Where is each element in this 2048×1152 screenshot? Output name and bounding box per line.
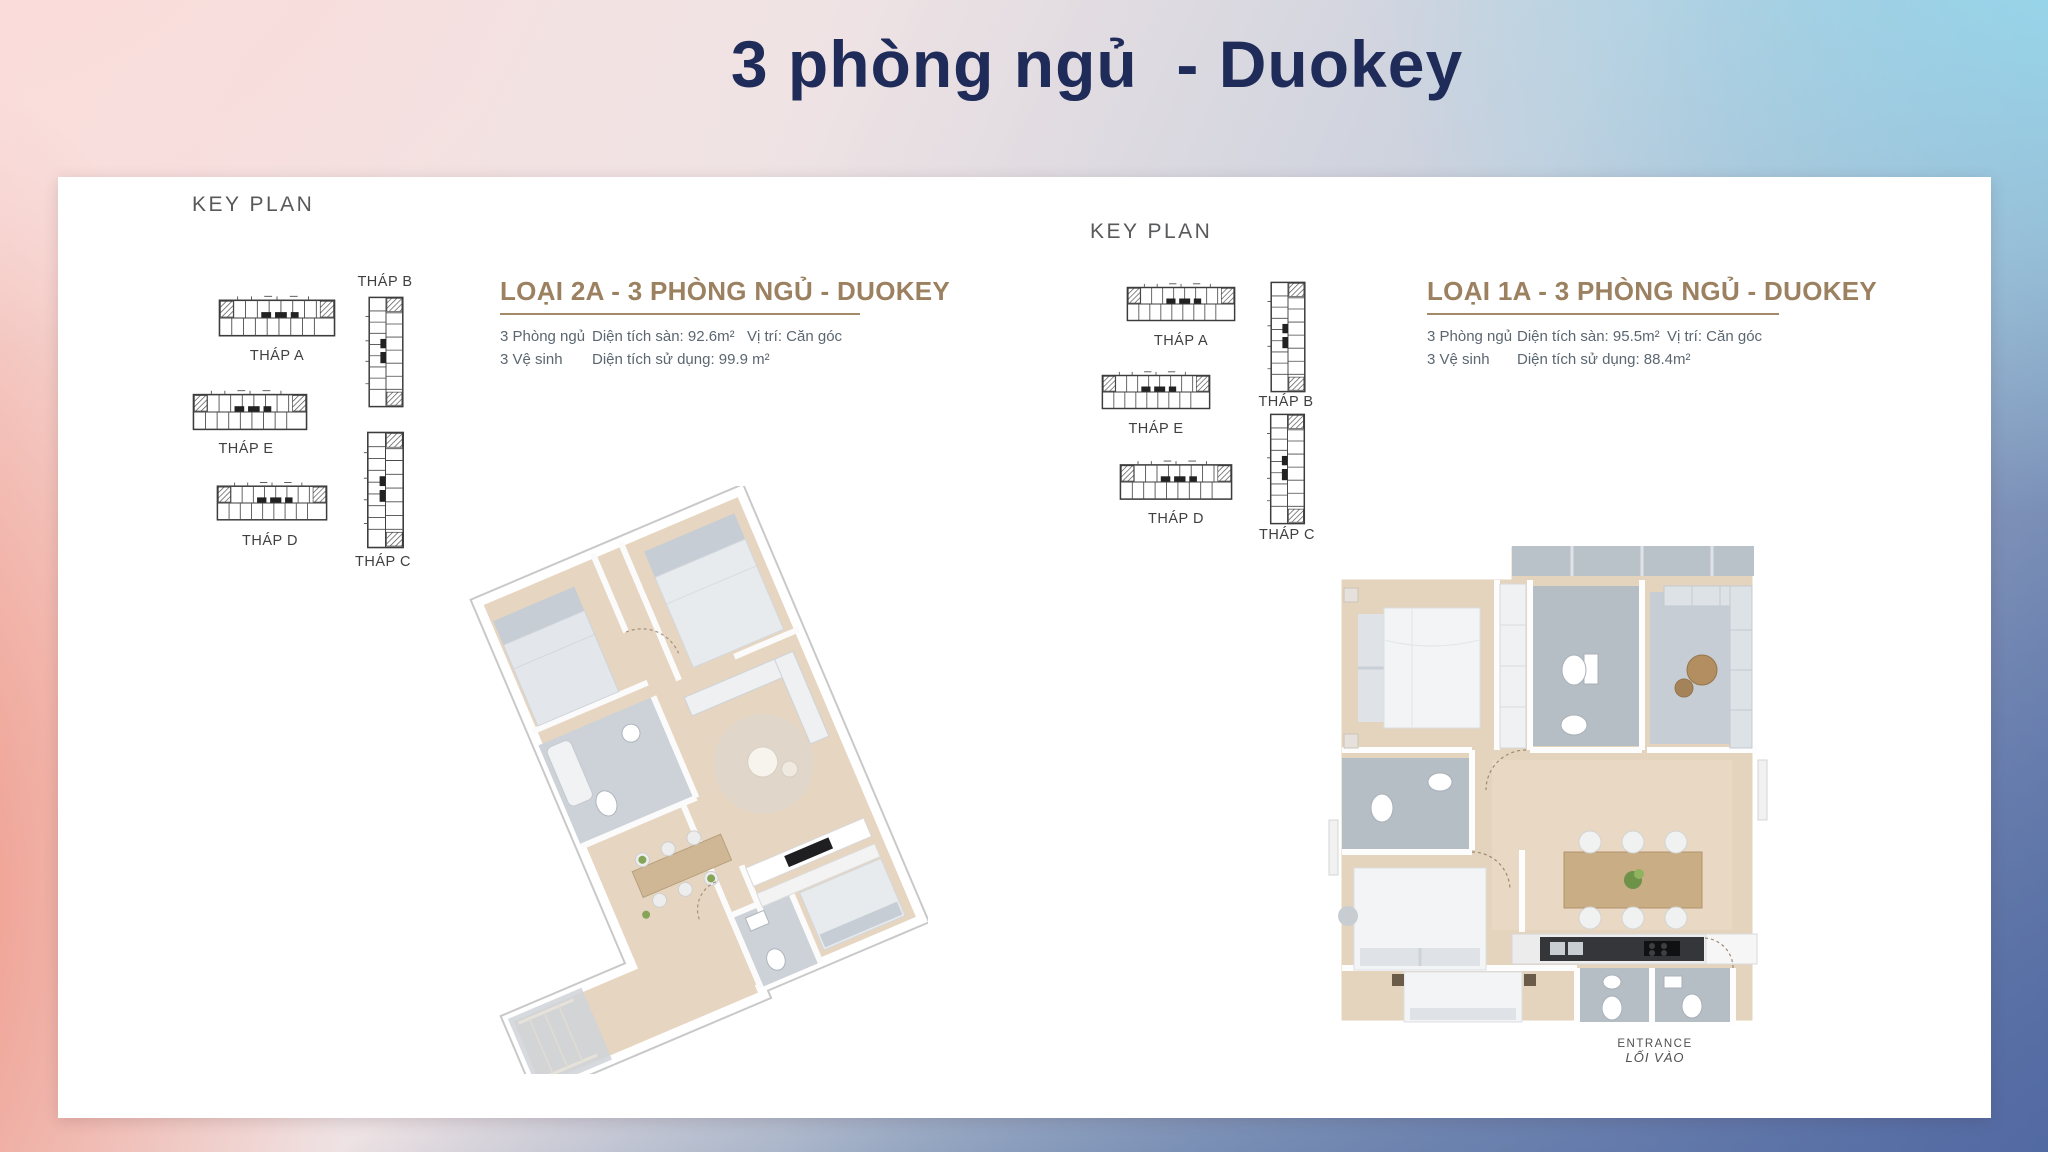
floor-plan-top-right: [1312, 520, 1784, 1048]
spec-usable-area: Diện tích sử dụng: 99.9 m²: [592, 351, 770, 368]
spec-floor-area: Diện tích sàn: 95.5m²: [1517, 328, 1660, 345]
entrance-label-en: ENTRANCE: [1585, 1038, 1725, 1050]
slide-background: 3 phòng ngủ - Duokey KEY PLAN THÁP A THÁ…: [0, 0, 2048, 1152]
entrance-label: ENTRANCE LỐI VÀO: [1585, 1038, 1725, 1065]
tower-label-b-right: THÁP B: [1246, 394, 1326, 410]
spec-usable-area: Diện tích sử dụng: 88.4m²: [1517, 351, 1690, 368]
unit-heading-right: LOẠI 1A - 3 PHÒNG NGỦ - DUOKEY: [1427, 276, 1877, 307]
tower-plan-e-right: [1101, 368, 1211, 416]
tower-label-e-left: THÁP E: [206, 441, 286, 457]
tower-plan-c-left: [357, 431, 414, 549]
key-plan-label-right: KEY PLAN: [1090, 220, 1212, 244]
unit-specs-right: 3 Phòng ngủ 3 Vệ sinh Diện tích sàn: 95.…: [1427, 328, 1987, 378]
floor-plan-3d-left: [408, 486, 928, 1074]
tower-plan-b-left: [358, 296, 414, 408]
tower-plan-b-right: [1262, 281, 1314, 393]
tower-plan-a-left: [218, 290, 336, 346]
tower-plan-d-left: [216, 476, 328, 530]
tower-plan-d-right: [1119, 456, 1233, 508]
tower-plan-a-right: [1126, 278, 1236, 330]
tower-label-d-left: THÁP D: [230, 533, 310, 549]
key-plan-label-left: KEY PLAN: [192, 193, 314, 217]
spec-bedrooms: 3 Phòng ngủ: [1427, 328, 1512, 345]
unit-specs-left: 3 Phòng ngủ 3 Vệ sinh Diện tích sàn: 92.…: [500, 328, 1060, 378]
spec-bedrooms: 3 Phòng ngủ: [500, 328, 585, 345]
tower-label-a-right: THÁP A: [1141, 333, 1221, 349]
heading-underline-left: [500, 313, 860, 315]
spec-bathrooms: 3 Vệ sinh: [500, 351, 563, 368]
tower-label-d-right: THÁP D: [1136, 511, 1216, 527]
tower-label-e-right: THÁP E: [1116, 421, 1196, 437]
spec-floor-area: Diện tích sàn: 92.6m²: [592, 328, 735, 345]
spec-bathrooms: 3 Vệ sinh: [1427, 351, 1490, 368]
page-title: 3 phòng ngủ - Duokey: [0, 26, 2048, 102]
spec-position: Vị trí: Căn góc: [1667, 328, 1762, 345]
entrance-label-vi: LỐI VÀO: [1585, 1050, 1725, 1065]
tower-plan-e-left: [192, 386, 308, 438]
tower-label-a-left: THÁP A: [237, 348, 317, 364]
spec-position: Vị trí: Căn góc: [747, 328, 842, 345]
heading-underline-right: [1427, 313, 1779, 315]
tower-plan-c-right: [1261, 413, 1314, 525]
unit-heading-left: LOẠI 2A - 3 PHÒNG NGỦ - DUOKEY: [500, 276, 950, 307]
tower-label-b-left: THÁP B: [345, 274, 425, 290]
